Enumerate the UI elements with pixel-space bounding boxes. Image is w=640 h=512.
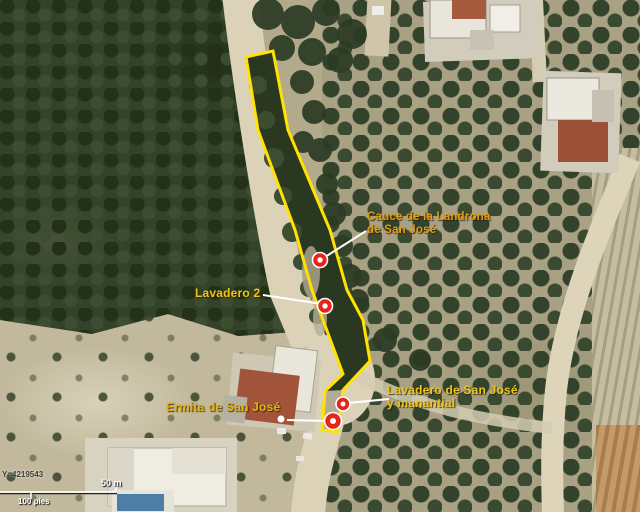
red-roof-building xyxy=(452,0,486,19)
label-cauce: Cauce de la Landrona de San José xyxy=(367,211,491,237)
label-lavadero-san-jose: Lavadero de San José y manantial xyxy=(387,384,518,410)
scale-distance-m: 50 m xyxy=(101,478,122,488)
cauce-marker xyxy=(313,253,328,268)
coordinate-readout: Y=4219543 xyxy=(2,470,43,479)
aerial-map-image: Cauce de la Landrona de San José Lavader… xyxy=(0,0,640,512)
map-overlay xyxy=(0,0,640,512)
red-roof-building xyxy=(558,120,608,162)
label-lavadero-2: Lavadero 2 xyxy=(195,287,260,300)
lavadero-san-jose-marker xyxy=(336,397,350,411)
ermita-marker xyxy=(325,413,342,430)
label-lavadero-san-jose-line2: y manantial xyxy=(387,397,518,410)
swimming-pool xyxy=(117,494,164,511)
lavadero-2-marker xyxy=(318,299,333,314)
label-cauce-line1: Cauce de la Landrona xyxy=(367,211,491,224)
label-cauce-line2: de San José xyxy=(367,224,491,237)
leader-dot xyxy=(278,416,285,423)
label-ermita: Ermita de San José xyxy=(166,401,280,414)
scale-distance-ft: 100 pies xyxy=(18,497,50,506)
